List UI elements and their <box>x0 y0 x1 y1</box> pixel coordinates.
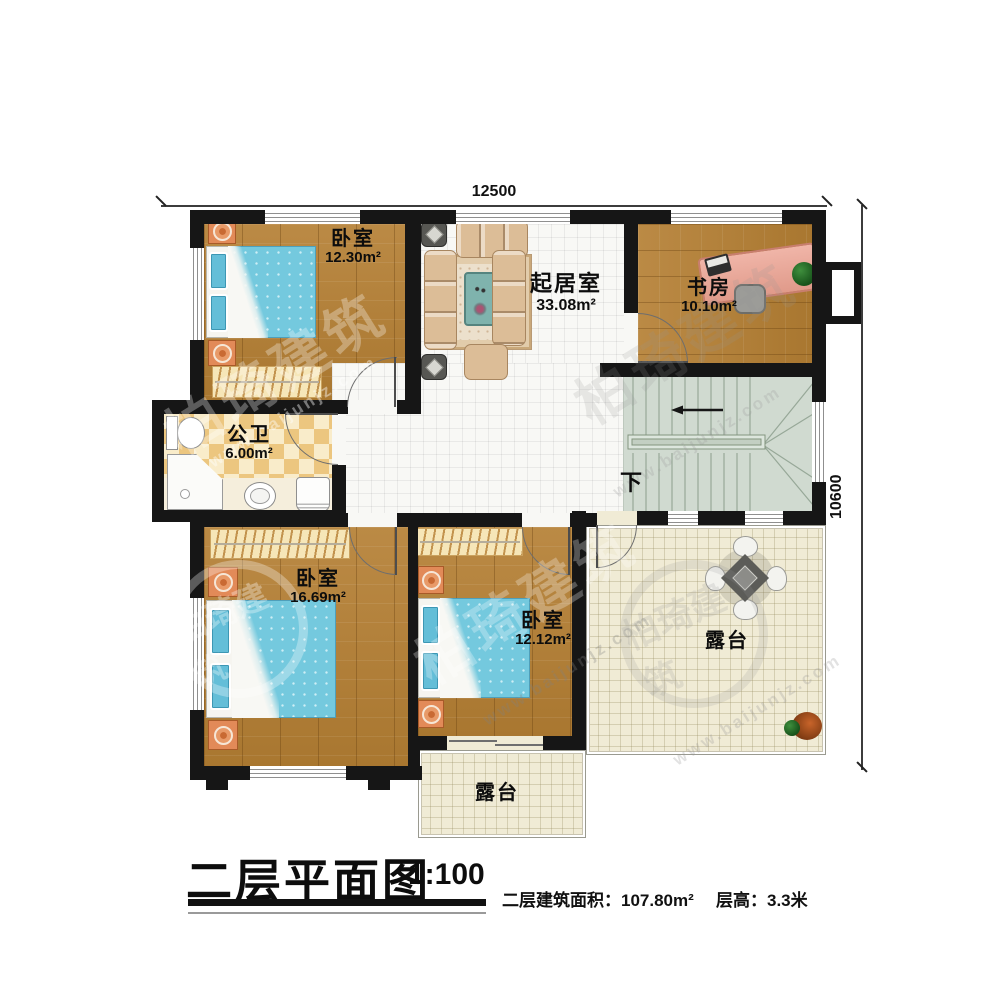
plan-scale: 1:100 <box>408 858 485 892</box>
door-leaf <box>395 527 397 575</box>
sofa-left <box>424 250 457 350</box>
bed-sheet <box>440 598 480 698</box>
wall <box>572 511 586 750</box>
chair-icon <box>733 599 758 620</box>
room-label-study: 书房 10.10m² <box>681 277 737 316</box>
floorplan-canvas: 柏琦建筑 www.baijunjz.com 柏琦建筑 www.baijunjz.… <box>0 0 1000 990</box>
sliding-door <box>449 740 497 742</box>
wall <box>637 511 668 525</box>
room-label-living-room: 起居室 33.08m² <box>530 272 602 315</box>
window <box>456 210 570 224</box>
wall <box>600 363 826 377</box>
room-label-bathroom: 公卫 6.00m² <box>225 424 273 463</box>
door-leaf <box>568 527 570 575</box>
window <box>250 766 346 780</box>
floor-height-label: 层高： <box>716 891 767 910</box>
pillow-icon <box>210 663 231 709</box>
wall-stub <box>206 780 228 790</box>
window <box>190 248 204 340</box>
room-label-bedroom-bottom-left: 卧室 16.69m² <box>290 568 346 607</box>
wall <box>397 513 522 527</box>
room-label-bedroom-top-left: 卧室 12.30m² <box>325 228 381 267</box>
stairs-down-label: 下 <box>620 465 642 497</box>
end-table <box>421 221 447 247</box>
door-opening <box>348 513 397 527</box>
door-leaf <box>285 413 338 415</box>
room-label-bedroom-bottom-mid: 卧室 12.12m² <box>515 610 571 649</box>
wall <box>543 736 586 750</box>
wardrobe <box>417 528 523 556</box>
plant-icon <box>784 720 800 736</box>
sliding-door <box>495 744 543 746</box>
dimension-width: 12500 <box>454 183 534 201</box>
title-underline-thin <box>188 912 486 914</box>
wall <box>397 400 405 414</box>
wall-stub <box>368 780 390 790</box>
door-leaf <box>596 525 598 568</box>
dimension-height: 10600 <box>828 452 846 542</box>
wall-stub <box>408 750 420 776</box>
sink-icon <box>244 482 276 510</box>
wall <box>783 511 826 525</box>
floor-area-label: 二层建筑面积： <box>502 891 621 910</box>
washing-machine-icon <box>296 477 330 512</box>
bed-sheet <box>228 246 268 338</box>
wall <box>152 400 348 414</box>
door-opening <box>522 513 570 527</box>
window <box>265 210 360 224</box>
floor-area-info: 二层建筑面积：107.80m² <box>502 886 694 911</box>
wall <box>152 400 164 522</box>
pillow-icon <box>421 605 440 645</box>
chaise-lounge <box>464 344 508 380</box>
nightstand <box>208 567 238 597</box>
sofa-right <box>492 250 526 346</box>
pillow-icon <box>209 252 227 289</box>
wall <box>190 513 348 527</box>
floor-area-value: 107.80m² <box>621 891 694 910</box>
door-opening <box>447 736 543 750</box>
nightstand <box>418 566 444 594</box>
stairs <box>623 373 820 513</box>
bed <box>418 598 530 698</box>
bed-sheet <box>232 600 279 718</box>
chair-icon <box>766 566 787 591</box>
toilet-bowl-icon <box>177 417 205 449</box>
wall <box>624 210 638 313</box>
window <box>671 210 782 224</box>
nightstand <box>208 720 238 750</box>
nightstand <box>418 700 444 728</box>
end-table <box>421 354 447 380</box>
floor-height-value: 3.3米 <box>767 891 808 910</box>
dimension-line-right <box>861 205 863 770</box>
nightstand <box>208 340 236 366</box>
window <box>745 511 783 525</box>
title-underline <box>188 899 486 906</box>
bed <box>206 246 316 338</box>
wall <box>698 511 745 525</box>
wall <box>405 210 421 414</box>
window <box>190 598 204 710</box>
office-chair-icon <box>734 284 766 314</box>
wall <box>408 736 447 750</box>
bed <box>206 600 336 718</box>
window <box>812 402 826 482</box>
door-opening <box>597 511 637 525</box>
pillow-icon <box>210 608 231 654</box>
floor-height-info: 层高：3.3米 <box>716 886 808 911</box>
door-leaf <box>394 357 396 407</box>
window <box>668 511 698 525</box>
dimension-line-top <box>161 205 827 207</box>
wall <box>408 527 418 766</box>
door-leaf <box>638 361 688 363</box>
room-label-terrace-bottom: 露台 <box>475 782 519 804</box>
bay-window <box>824 262 862 324</box>
door-opening <box>624 313 638 363</box>
room-label-terrace-right: 露台 <box>705 630 749 652</box>
wardrobe <box>210 529 350 559</box>
wardrobe <box>212 366 322 398</box>
pillow-icon <box>421 651 440 691</box>
pillow-icon <box>209 294 227 331</box>
